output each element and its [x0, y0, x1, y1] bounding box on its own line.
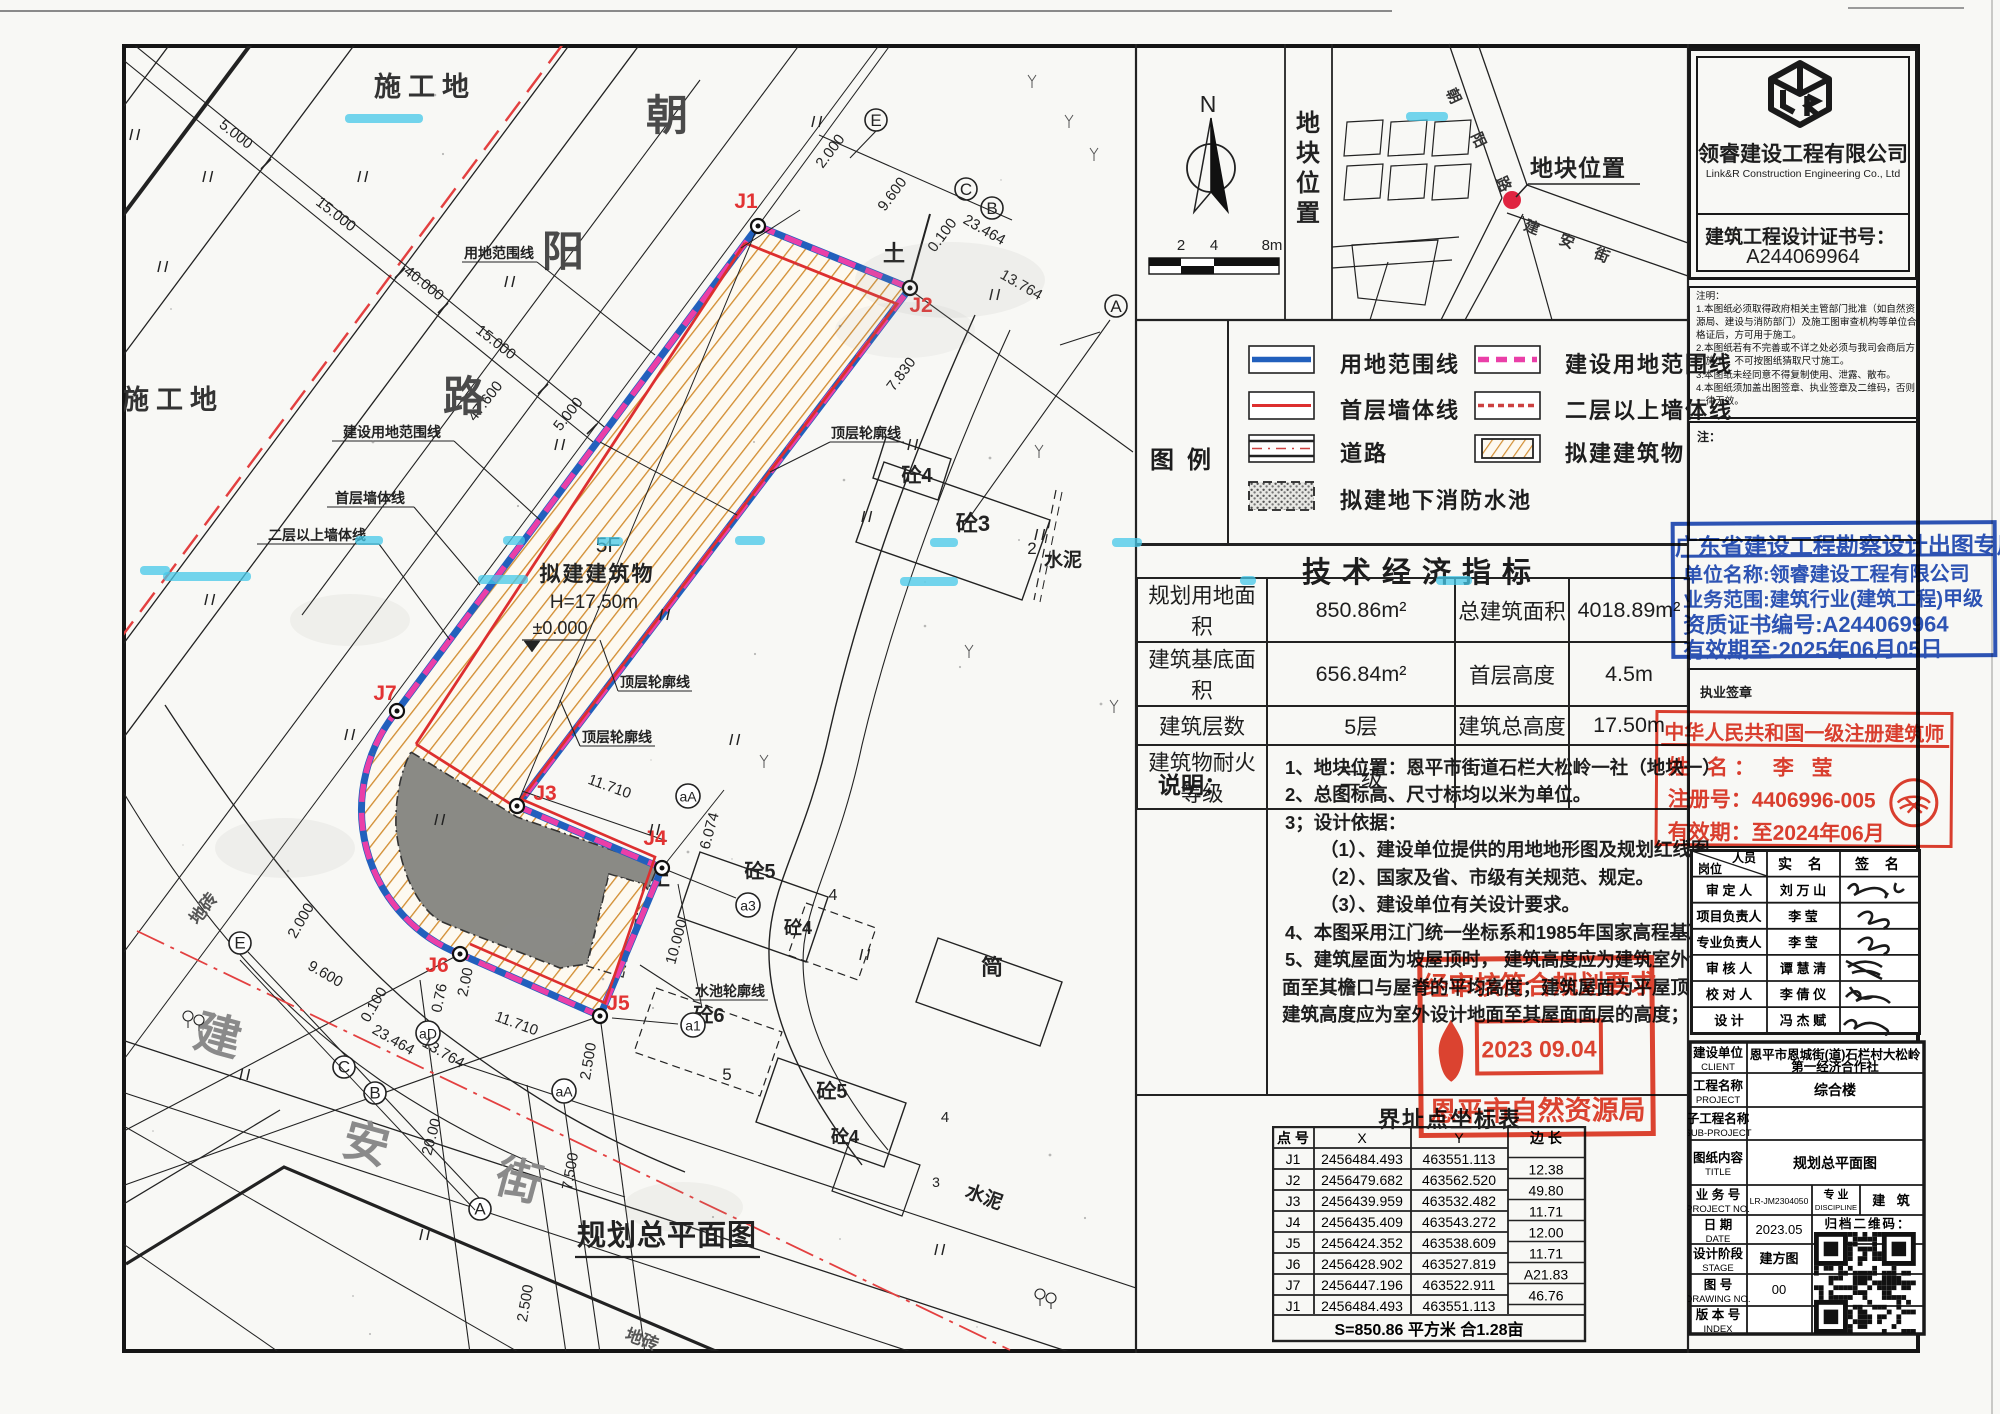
svg-text:a3: a3: [740, 898, 756, 914]
svg-text:J7: J7: [373, 682, 396, 705]
svg-text:砼4: 砼4: [784, 917, 812, 938]
svg-text:地: 地: [1296, 110, 1320, 137]
svg-text:a1: a1: [685, 1018, 701, 1034]
svg-text:审 核 人: 审 核 人: [1706, 961, 1753, 976]
svg-text:李 莹: 李 莹: [1787, 935, 1818, 950]
svg-text:阳: 阳: [542, 228, 584, 275]
svg-text:463538.609: 463538.609: [1422, 1235, 1496, 1251]
svg-text:A: A: [1110, 297, 1122, 316]
svg-text:2456484.493: 2456484.493: [1321, 1298, 1403, 1314]
svg-text:规划总平面图: 规划总平面图: [1793, 1155, 1877, 1171]
svg-text:归档二维码：: 归档二维码：: [1824, 1216, 1911, 1231]
svg-text:A: A: [474, 1200, 486, 1219]
svg-text:图纸内容: 图纸内容: [1693, 1150, 1744, 1165]
svg-text:人员: 人员: [1732, 850, 1756, 865]
svg-text:463543.272: 463543.272: [1422, 1214, 1496, 1230]
svg-text:施工地: 施工地: [374, 72, 476, 102]
svg-text:4: 4: [1210, 237, 1218, 254]
svg-text:第一经济合作社: 第一经济合作社: [1791, 1059, 1879, 1074]
svg-text:水池轮廓线: 水池轮廓线: [695, 983, 765, 999]
svg-text:J4: J4: [1286, 1214, 1301, 1230]
svg-text:4: 4: [829, 887, 838, 904]
svg-text:23.464: 23.464: [369, 1021, 417, 1059]
svg-text:李 倩 仪: 李 倩 仪: [1779, 987, 1827, 1002]
svg-text:J3: J3: [1286, 1193, 1301, 1209]
svg-text:2456479.682: 2456479.682: [1321, 1172, 1403, 1188]
svg-text:5: 5: [722, 1065, 731, 1084]
svg-text:校 对 人: 校 对 人: [1706, 987, 1753, 1002]
svg-text:业 务 号: 业 务 号: [1696, 1187, 1740, 1202]
svg-text:B: B: [986, 199, 997, 218]
svg-text:2.000: 2.000: [812, 131, 848, 171]
svg-text:CLIENT: CLIENT: [1701, 1062, 1735, 1073]
svg-text:463527.819: 463527.819: [1422, 1256, 1496, 1272]
svg-text:9.600: 9.600: [874, 174, 910, 214]
svg-text:设计阶段: 设计阶段: [1693, 1246, 1744, 1261]
svg-text:INDEX: INDEX: [1703, 1324, 1733, 1335]
svg-text:5.000: 5.000: [550, 394, 587, 434]
svg-text:E: E: [870, 111, 881, 130]
svg-text:刘 万 山: 刘 万 山: [1780, 883, 1826, 898]
svg-text:位: 位: [1296, 169, 1320, 197]
svg-text:11.71: 11.71: [1529, 1204, 1563, 1220]
svg-text:块: 块: [1296, 140, 1320, 167]
svg-text:朝: 朝: [646, 92, 688, 139]
svg-text:6.074: 6.074: [697, 811, 723, 852]
svg-text:拟建建筑物: 拟建建筑物: [540, 562, 655, 586]
svg-text:置: 置: [1296, 200, 1320, 227]
svg-text:C: C: [338, 1058, 350, 1077]
svg-text:2456428.902: 2456428.902: [1321, 1256, 1403, 1272]
svg-text:谭 慧 清: 谭 慧 清: [1780, 961, 1826, 976]
svg-text:H=17.50m: H=17.50m: [550, 592, 638, 613]
svg-text:S=850.86 平方米 合1.28亩: S=850.86 平方米 合1.28亩: [1335, 1320, 1524, 1339]
svg-text:11.71: 11.71: [1529, 1246, 1563, 1262]
svg-text:2456484.493: 2456484.493: [1321, 1151, 1403, 1167]
svg-text:0.76: 0.76: [428, 982, 451, 1014]
svg-text:463522.911: 463522.911: [1423, 1277, 1496, 1293]
svg-text:日 期: 日 期: [1704, 1217, 1732, 1232]
svg-text:STAGE: STAGE: [1702, 1263, 1734, 1274]
svg-text:2.500: 2.500: [577, 1041, 600, 1081]
svg-text:路: 路: [443, 373, 486, 420]
svg-text:15.000: 15.000: [472, 322, 519, 364]
svg-text:00: 00: [1772, 1282, 1786, 1297]
svg-text:子工程名称: 子工程名称: [1688, 1111, 1750, 1126]
svg-text:11.710: 11.710: [586, 771, 634, 802]
svg-text:2: 2: [1027, 539, 1036, 558]
svg-text:9.600: 9.600: [305, 957, 346, 990]
svg-text:朝: 朝: [1442, 86, 1464, 107]
svg-text:工程名称: 工程名称: [1693, 1078, 1744, 1093]
svg-text:专 业: 专 业: [1823, 1187, 1848, 1201]
svg-text:10.000: 10.000: [663, 917, 691, 966]
svg-text:顶层轮廓线: 顶层轮廓线: [582, 729, 652, 745]
svg-text:2.500: 2.500: [514, 1283, 537, 1323]
svg-text:J4: J4: [643, 827, 667, 850]
svg-text:8m: 8m: [1262, 237, 1283, 254]
svg-text:J6: J6: [425, 954, 448, 977]
svg-text:规划总平面图: 规划总平面图: [577, 1219, 757, 1252]
svg-text:PROJECT: PROJECT: [1696, 1095, 1741, 1106]
svg-text:TITLE: TITLE: [1705, 1167, 1731, 1178]
svg-text:顶层轮廓线: 顶层轮廓线: [831, 425, 901, 441]
svg-text:用地范围线: 用地范围线: [464, 245, 534, 261]
svg-text:首层墙体线: 首层墙体线: [335, 490, 405, 506]
svg-text:水泥: 水泥: [962, 1181, 1005, 1215]
svg-text:LR-JM2304050: LR-JM2304050: [1750, 1196, 1809, 1206]
svg-text:J5: J5: [606, 992, 630, 1015]
svg-text:2: 2: [1177, 237, 1185, 254]
svg-text:15.000: 15.000: [312, 194, 359, 236]
svg-text:DATE: DATE: [1706, 1234, 1731, 1245]
svg-text:J6: J6: [1286, 1256, 1301, 1272]
svg-text:2456424.352: 2456424.352: [1321, 1235, 1403, 1251]
svg-text:PROJECT NO.: PROJECT NO.: [1688, 1204, 1750, 1215]
svg-text:2.000: 2.000: [284, 900, 317, 941]
svg-text:专业负责人: 专业负责人: [1696, 935, 1762, 950]
svg-text:水泥: 水泥: [1044, 549, 1082, 571]
svg-text:7.500: 7.500: [559, 1151, 582, 1191]
svg-text:5.000: 5.000: [216, 116, 256, 153]
svg-text:12.38: 12.38: [1528, 1162, 1563, 1178]
svg-text:463551.113: 463551.113: [1423, 1151, 1496, 1167]
svg-text:J1: J1: [1286, 1298, 1301, 1314]
svg-text:砼5: 砼5: [816, 1079, 847, 1103]
svg-text:J2: J2: [1286, 1172, 1301, 1188]
svg-text:地块位置: 地块位置: [1530, 155, 1626, 181]
svg-text:3: 3: [932, 1174, 940, 1190]
svg-text:A21.83: A21.83: [1524, 1267, 1569, 1283]
svg-text:2456439.959: 2456439.959: [1321, 1193, 1403, 1209]
svg-text:J3: J3: [533, 782, 556, 805]
svg-text:建 筑: 建 筑: [1872, 1193, 1914, 1208]
svg-text:C: C: [960, 180, 972, 199]
svg-text:建: 建: [189, 1004, 247, 1066]
svg-text:SUB-PROJECT: SUB-PROJECT: [1688, 1128, 1752, 1139]
svg-text:建设用地范围线: 建设用地范围线: [343, 424, 441, 440]
svg-text:N: N: [1200, 91, 1217, 117]
svg-text:49.80: 49.80: [1528, 1183, 1563, 1199]
svg-text:2456447.196: 2456447.196: [1321, 1277, 1403, 1293]
svg-text:街: 街: [489, 1149, 548, 1211]
svg-text:0.100: 0.100: [357, 984, 390, 1025]
svg-text:审 定 人: 审 定 人: [1706, 883, 1753, 898]
svg-text:实 名: 实 名: [1778, 856, 1828, 872]
svg-text:11.710: 11.710: [493, 1008, 541, 1039]
svg-text:签 名: 签 名: [1854, 856, 1905, 872]
svg-text:版 本 号: 版 本 号: [1696, 1307, 1740, 1322]
svg-text:DRAWING NO.: DRAWING NO.: [1688, 1294, 1751, 1305]
svg-text:13.764: 13.764: [419, 1034, 467, 1072]
svg-text:X: X: [1357, 1130, 1367, 1146]
svg-text:2456435.409: 2456435.409: [1321, 1214, 1403, 1230]
svg-text:463532.482: 463532.482: [1422, 1193, 1496, 1209]
svg-text:砼4: 砼4: [901, 463, 933, 487]
svg-text:安: 安: [1557, 230, 1578, 252]
svg-text:40.000: 40.000: [400, 263, 447, 305]
svg-text:顶层轮廓线: 顶层轮廓线: [620, 674, 690, 690]
svg-text:点 号: 点 号: [1277, 1130, 1309, 1146]
svg-text:建设单位: 建设单位: [1693, 1045, 1744, 1060]
svg-text:二层以上墙体线: 二层以上墙体线: [268, 527, 366, 543]
svg-text:砼3: 砼3: [956, 511, 990, 536]
svg-text:2.00: 2.00: [454, 966, 477, 998]
svg-text:±0.000: ±0.000: [533, 618, 588, 638]
svg-text:J1: J1: [734, 190, 758, 213]
svg-text:综合楼: 综合楼: [1814, 1082, 1856, 1098]
svg-text:2023.05: 2023.05: [1756, 1222, 1803, 1237]
svg-text:简: 简: [981, 955, 1003, 980]
svg-text:街: 街: [1591, 244, 1613, 267]
svg-text:冯 杰 赋: 冯 杰 赋: [1780, 1013, 1826, 1028]
svg-text:4: 4: [941, 1109, 949, 1126]
svg-text:施工地: 施工地: [122, 385, 224, 415]
svg-text:E: E: [234, 934, 245, 953]
svg-text:设 计: 设 计: [1714, 1013, 1744, 1028]
svg-text:砼4: 砼4: [831, 1126, 859, 1147]
svg-text:地砖: 地砖: [185, 889, 221, 928]
svg-text:46.76: 46.76: [1528, 1288, 1563, 1304]
svg-text:建方图: 建方图: [1759, 1251, 1798, 1266]
svg-text:J7: J7: [1286, 1277, 1301, 1293]
svg-text:DISCIPLINE: DISCIPLINE: [1815, 1203, 1857, 1212]
svg-text:项目负责人: 项目负责人: [1696, 909, 1762, 924]
svg-text:463562.520: 463562.520: [1422, 1172, 1496, 1188]
svg-text:李 莹: 李 莹: [1787, 909, 1818, 924]
svg-text:12.00: 12.00: [1528, 1225, 1563, 1241]
svg-text:J5: J5: [1286, 1235, 1301, 1251]
svg-text:图 号: 图 号: [1704, 1277, 1732, 1292]
svg-text:aA: aA: [679, 789, 697, 805]
svg-text:463551.113: 463551.113: [1423, 1298, 1496, 1314]
svg-text:岗位: 岗位: [1698, 861, 1722, 876]
svg-text:7.830: 7.830: [883, 354, 919, 394]
svg-text:aA: aA: [555, 1084, 573, 1100]
svg-text:砼5: 砼5: [744, 859, 775, 883]
svg-text:J1: J1: [1286, 1151, 1301, 1167]
